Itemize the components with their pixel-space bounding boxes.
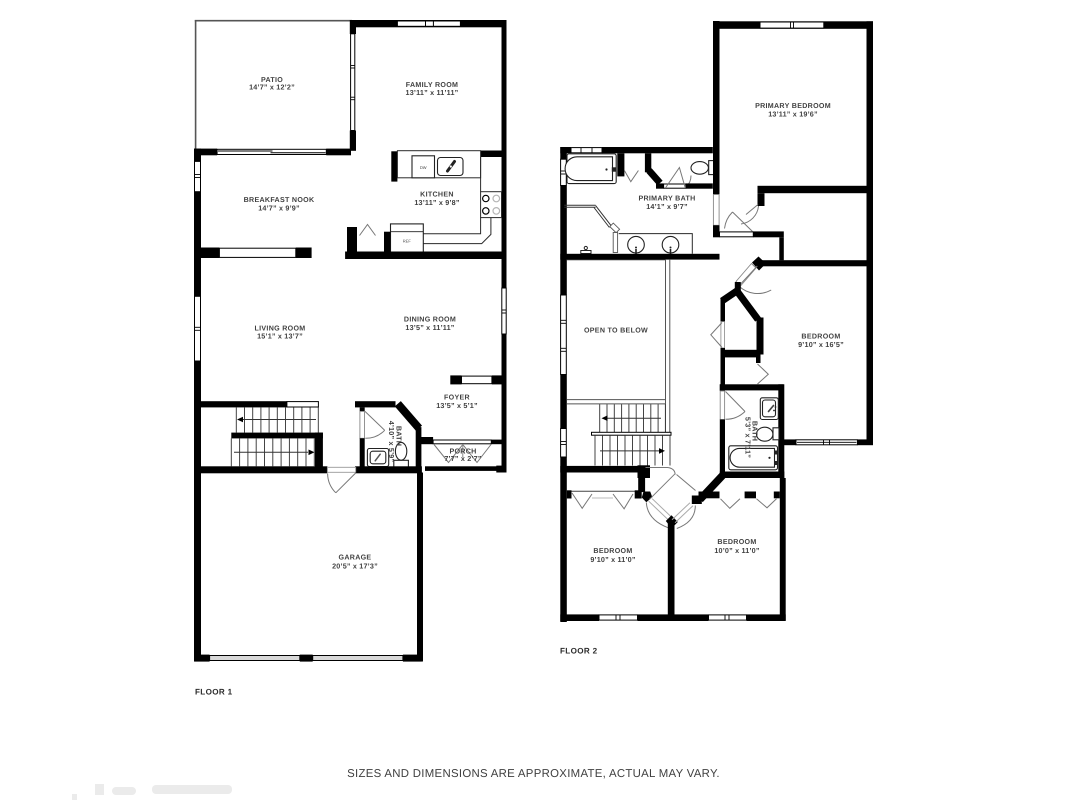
- svg-text:BEDROOM: BEDROOM: [593, 547, 632, 555]
- svg-text:13’11” x 11’11”: 13’11” x 11’11”: [406, 88, 459, 97]
- svg-text:13’11” x 19’6”: 13’11” x 19’6”: [768, 110, 818, 119]
- svg-text:OPEN TO BELOW: OPEN TO BELOW: [584, 327, 648, 335]
- svg-text:9’10” x 11’0”: 9’10” x 11’0”: [590, 555, 636, 564]
- svg-text:9’10” x 16’5”: 9’10” x 16’5”: [798, 340, 844, 349]
- svg-text:20’5” x 17’3”: 20’5” x 17’3”: [332, 562, 378, 571]
- svg-text:FLOOR 2: FLOOR 2: [560, 647, 598, 656]
- svg-text:14’7” x 12’2”: 14’7” x 12’2”: [249, 83, 295, 92]
- svg-text:15’1” x 13’7”: 15’1” x 13’7”: [257, 332, 303, 341]
- svg-text:13’11” x 9’8”: 13’11” x 9’8”: [414, 198, 460, 207]
- svg-text:DW: DW: [420, 165, 427, 170]
- svg-text:13’5” x 11’11”: 13’5” x 11’11”: [405, 323, 454, 332]
- svg-text:GARAGE: GARAGE: [339, 554, 372, 562]
- svg-text:14’7” x 9’9”: 14’7” x 9’9”: [258, 204, 300, 213]
- svg-text:10’0” x 11’0”: 10’0” x 11’0”: [714, 546, 760, 555]
- svg-text:FLOOR 1: FLOOR 1: [195, 688, 233, 697]
- svg-text:7’7” x 2’7”: 7’7” x 2’7”: [444, 454, 482, 463]
- svg-text:REF: REF: [403, 239, 412, 244]
- svg-text:BEDROOM: BEDROOM: [717, 538, 756, 546]
- svg-text:5’3” x 7’11”: 5’3” x 7’11”: [743, 417, 752, 458]
- svg-text:4’10” x 5’9”: 4’10” x 5’9”: [387, 421, 396, 463]
- svg-text:14’1” x 9’7”: 14’1” x 9’7”: [646, 202, 688, 211]
- svg-text:SIZES AND DIMENSIONS ARE APPRO: SIZES AND DIMENSIONS ARE APPROXIMATE, AC…: [347, 768, 720, 780]
- svg-text:13’5” x 5’1”: 13’5” x 5’1”: [436, 401, 478, 410]
